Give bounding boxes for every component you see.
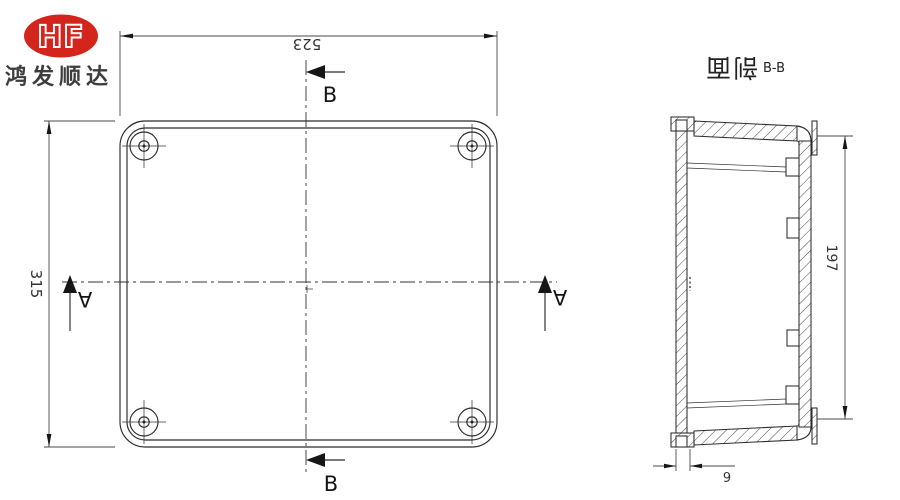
mounting-foot-bottom-left bbox=[671, 433, 694, 447]
section-label-a-right: A bbox=[552, 285, 567, 309]
internal-boss-3 bbox=[787, 330, 799, 346]
flange-lip-top-left bbox=[671, 117, 694, 131]
logo-monogram: HF bbox=[37, 20, 85, 55]
internal-boss-4 bbox=[786, 386, 799, 404]
internal-boss-1 bbox=[786, 158, 799, 176]
dim-width-value: 523 bbox=[293, 35, 322, 53]
dim-depth-value: 197 bbox=[823, 245, 839, 272]
logo-company-name: 鸿发顺达 bbox=[5, 64, 113, 90]
section-bottom-wall bbox=[676, 131, 687, 433]
section-label-b-top: B bbox=[323, 83, 337, 107]
section-label-a-left: A bbox=[77, 287, 92, 311]
gasket-lip-top bbox=[812, 121, 817, 155]
section-title-ref: B-B bbox=[763, 61, 785, 76]
section-label-b-bottom: B bbox=[324, 472, 338, 496]
internal-boss-2 bbox=[787, 218, 799, 238]
technical-drawing: HF 鸿发顺达 bbox=[0, 0, 900, 500]
dim-height-value: 315 bbox=[27, 270, 45, 299]
drawing-sheet: HF 鸿发顺达 bbox=[0, 0, 900, 500]
dim-lip-value: 6 bbox=[723, 468, 731, 483]
section-flange-wall bbox=[799, 141, 811, 427]
gasket-lip-bottom bbox=[812, 408, 817, 444]
section-title-cn: 剖面 bbox=[704, 53, 758, 82]
